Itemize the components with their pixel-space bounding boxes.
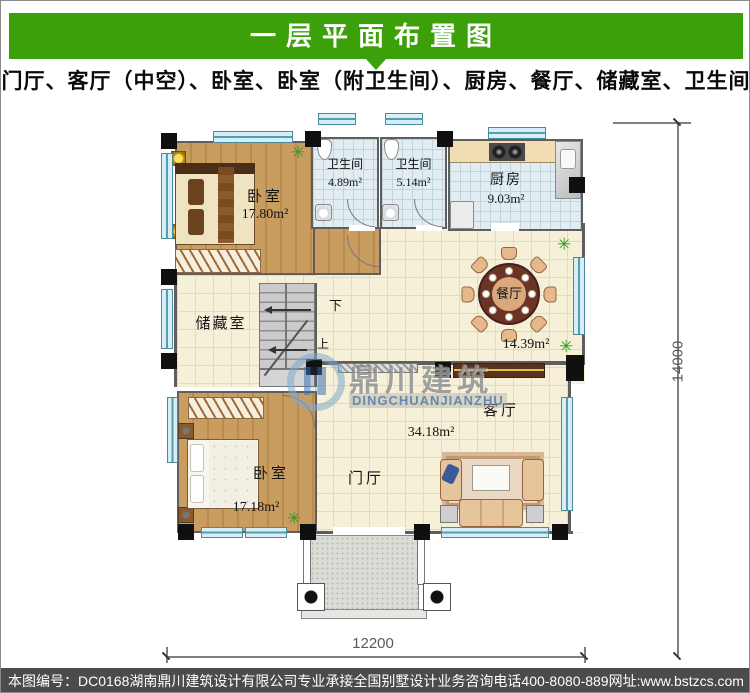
window xyxy=(167,397,178,463)
label-bedroom-top-area: 17.80m² xyxy=(215,207,315,223)
window xyxy=(161,289,173,349)
dimension-line-bottom xyxy=(166,656,586,658)
stair-arrow-up xyxy=(275,349,307,351)
label-bath-b-area: 5.14m² xyxy=(380,175,447,190)
window xyxy=(201,527,243,538)
nightstand-icon xyxy=(178,423,194,439)
footer-bar: 本图编号：DC0168 湖南鼎川建筑设计有限公司专业承接全国别墅设计业务 咨询电… xyxy=(1,668,750,693)
label-living-area: 34.18m² xyxy=(386,425,476,441)
stair-arrow-down-head xyxy=(264,306,272,314)
label-bath-a: 卫生间 xyxy=(311,155,379,172)
dimension-height: 14000 xyxy=(670,332,687,392)
stair-arrow-up-head xyxy=(268,346,276,354)
stove-icon xyxy=(489,143,525,161)
label-bedroom-bottom: 卧室 xyxy=(241,462,301,483)
stair-divider xyxy=(285,283,287,369)
pillow xyxy=(190,475,204,503)
porch-side-wall xyxy=(417,533,425,585)
window xyxy=(385,113,423,125)
footer-company: 湖南鼎川建筑设计有限公司专业承接全国别墅设计业务 xyxy=(129,671,465,691)
porch-side-wall xyxy=(303,533,311,585)
label-kitchen-area: 9.03m² xyxy=(466,191,546,207)
drawing-page: 一层平面布置图 门厅、客厅（中空）、卧室、卧室（附卫生间）、厨房、餐厅、储藏室、… xyxy=(0,0,750,693)
window xyxy=(161,153,173,239)
plate-icon xyxy=(482,290,490,298)
wall-storage-left xyxy=(174,275,177,387)
window xyxy=(441,527,549,538)
washbasin-icon xyxy=(315,204,332,221)
armchair xyxy=(522,459,544,501)
side-table xyxy=(440,505,458,523)
plate-icon xyxy=(528,290,536,298)
window xyxy=(561,397,573,511)
stair-arrow-down xyxy=(271,309,311,311)
label-bath-a-area: 4.89m² xyxy=(311,175,379,190)
column xyxy=(437,131,453,147)
porch-slab xyxy=(309,535,419,611)
floor-plan: 下 上 餐厅 xyxy=(151,107,711,668)
sofa xyxy=(459,499,523,527)
column xyxy=(161,353,177,369)
stair-up-label: 上 xyxy=(317,335,329,352)
plate-icon xyxy=(505,313,513,321)
column xyxy=(161,133,177,149)
dining-chair xyxy=(462,287,475,303)
column xyxy=(552,524,568,540)
label-dining: 餐厅 xyxy=(492,277,526,311)
label-storage: 储藏室 xyxy=(181,312,261,333)
window xyxy=(318,113,356,125)
label-foyer: 门厅 xyxy=(336,467,396,488)
footer-website: 网址:www.bstzcs.com xyxy=(609,671,744,691)
column xyxy=(305,131,321,147)
label-bath-b: 卫生间 xyxy=(380,155,447,172)
dining-chair xyxy=(544,287,557,303)
window xyxy=(213,131,293,143)
dining-chair xyxy=(501,247,517,260)
wardrobe xyxy=(188,397,264,419)
nightstand-icon xyxy=(178,507,194,523)
porch-column xyxy=(297,583,325,611)
window xyxy=(245,527,287,538)
watermark-en: DINGCHUANJIANZHU xyxy=(349,393,507,408)
footer-drawing-number: 本图编号：DC0168 xyxy=(8,671,129,691)
column xyxy=(414,524,430,540)
page-title: 一层平面布置图 xyxy=(9,13,743,59)
plant-icon: ✳ xyxy=(291,145,305,162)
footer-phone: 咨询电话400-8080-889 xyxy=(465,671,608,691)
column xyxy=(566,355,584,381)
porch-column xyxy=(423,583,451,611)
window xyxy=(573,257,585,335)
column xyxy=(300,524,316,540)
label-bedroom-bottom-area: 17.18m² xyxy=(211,500,301,516)
wall-mask xyxy=(571,384,587,532)
pillow xyxy=(188,209,204,235)
wardrobe xyxy=(175,249,261,273)
dimension-width: 12200 xyxy=(323,635,423,652)
washbasin-icon xyxy=(382,204,399,221)
coffee-table xyxy=(472,465,510,491)
watermark-building-icon xyxy=(304,367,326,395)
label-kitchen: 厨房 xyxy=(471,169,541,189)
column xyxy=(178,524,194,540)
column xyxy=(161,269,177,285)
label-dining-area: 14.39m² xyxy=(486,337,566,353)
door-gap xyxy=(333,527,405,535)
window xyxy=(488,127,546,139)
pillow xyxy=(190,444,204,472)
plate-icon xyxy=(505,267,513,275)
bed-top-headboard xyxy=(175,163,255,174)
room-list-subtitle: 门厅、客厅（中空）、卧室、卧室（附卫生间）、厨房、餐厅、储藏室、卫生间 xyxy=(1,65,750,95)
column xyxy=(569,177,585,193)
kitchen-sink-basin xyxy=(560,149,576,169)
pillow xyxy=(188,179,204,205)
side-table xyxy=(526,505,544,523)
plant-icon: ✳ xyxy=(557,237,571,254)
label-bedroom-top: 卧室 xyxy=(225,185,305,206)
door-gap xyxy=(491,223,519,231)
stair-down-label: 下 xyxy=(329,295,342,314)
